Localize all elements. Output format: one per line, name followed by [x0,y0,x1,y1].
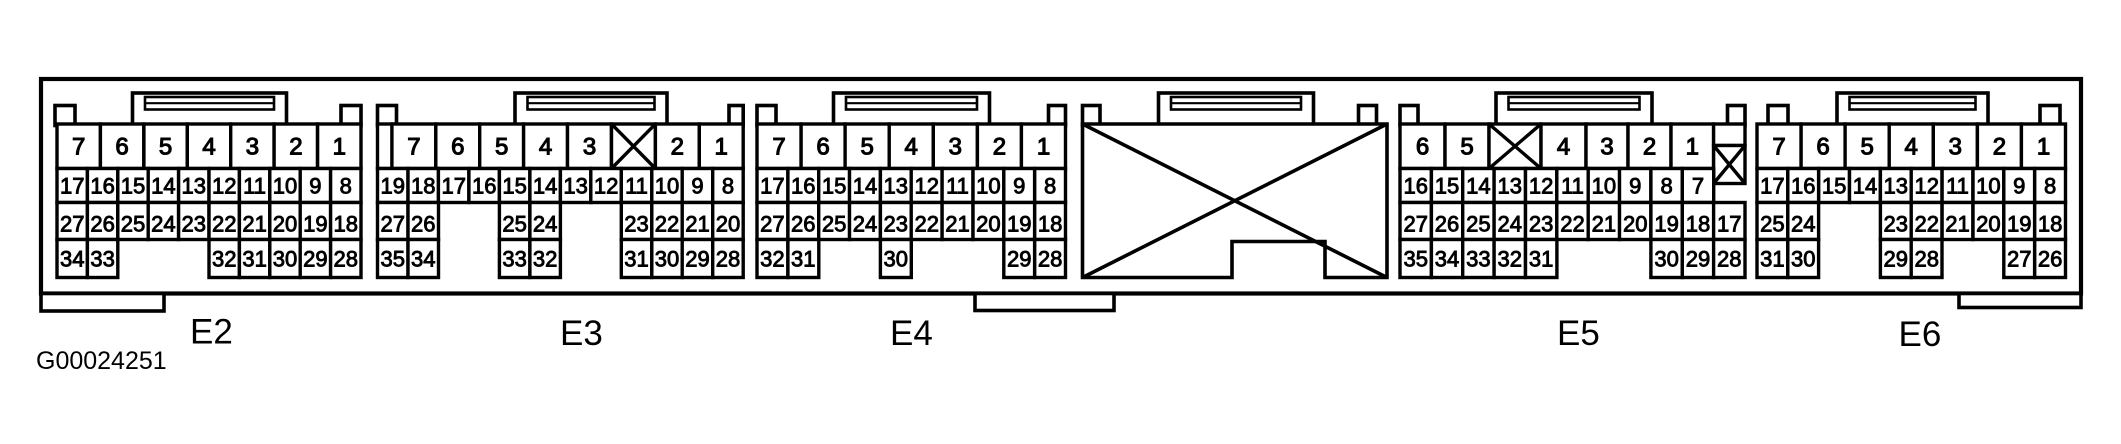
svg-text:9: 9 [2013,174,2025,199]
svg-text:27: 27 [60,211,84,236]
svg-text:21: 21 [1592,211,1616,236]
svg-text:19: 19 [1654,211,1678,236]
svg-text:28: 28 [1038,247,1062,272]
svg-text:20: 20 [273,211,297,236]
svg-text:31: 31 [791,247,815,272]
svg-text:19: 19 [303,211,327,236]
svg-text:7: 7 [72,134,85,161]
svg-text:13: 13 [884,174,908,199]
svg-text:23: 23 [1884,211,1908,236]
svg-text:22: 22 [1914,211,1938,236]
svg-text:6: 6 [1816,134,1829,161]
svg-text:34: 34 [60,247,84,272]
svg-text:28: 28 [1717,247,1741,272]
svg-text:22: 22 [655,211,679,236]
svg-text:24: 24 [1498,211,1522,236]
svg-text:10: 10 [976,174,1000,199]
svg-text:21: 21 [685,211,709,236]
svg-text:9: 9 [309,174,321,199]
svg-text:34: 34 [411,247,435,272]
svg-text:32: 32 [760,247,784,272]
svg-text:5: 5 [495,134,508,161]
svg-text:24: 24 [151,211,175,236]
svg-text:32: 32 [212,247,236,272]
svg-text:13: 13 [563,174,587,199]
svg-text:25: 25 [502,211,526,236]
svg-text:10: 10 [1592,174,1616,199]
svg-text:22: 22 [914,211,938,236]
svg-text:11: 11 [1561,174,1584,199]
svg-text:4: 4 [202,134,215,161]
svg-text:17: 17 [1717,211,1741,236]
svg-text:30: 30 [273,247,297,272]
svg-text:17: 17 [441,174,465,199]
svg-text:12: 12 [1914,174,1938,199]
svg-text:21: 21 [945,211,969,236]
svg-text:3: 3 [1600,134,1613,161]
svg-text:18: 18 [334,211,358,236]
svg-text:29: 29 [1686,247,1710,272]
svg-text:E6: E6 [1899,315,1942,354]
svg-text:31: 31 [242,247,266,272]
svg-text:15: 15 [121,174,145,199]
svg-text:1: 1 [715,134,728,161]
svg-text:33: 33 [1466,247,1490,272]
svg-text:13: 13 [1498,174,1522,199]
svg-text:26: 26 [411,211,435,236]
svg-text:E5: E5 [1557,314,1600,353]
svg-text:26: 26 [2038,247,2062,272]
svg-text:G00024251: G00024251 [36,347,167,375]
svg-text:21: 21 [1945,211,1969,236]
svg-text:4: 4 [1905,134,1918,161]
svg-text:29: 29 [1884,247,1908,272]
svg-text:11: 11 [243,174,266,199]
svg-text:27: 27 [1403,211,1427,236]
svg-text:15: 15 [1435,174,1459,199]
svg-text:34: 34 [1435,247,1459,272]
svg-text:12: 12 [212,174,236,199]
svg-text:27: 27 [2007,247,2031,272]
svg-text:29: 29 [1007,247,1031,272]
svg-text:9: 9 [1629,174,1641,199]
svg-text:E4: E4 [890,314,933,353]
svg-text:19: 19 [380,174,404,199]
svg-text:32: 32 [533,247,557,272]
svg-text:27: 27 [380,211,404,236]
svg-text:28: 28 [1914,247,1938,272]
svg-text:2: 2 [671,134,684,161]
svg-text:12: 12 [594,174,618,199]
svg-text:18: 18 [1686,211,1710,236]
svg-text:14: 14 [1466,174,1490,199]
svg-text:25: 25 [1760,211,1784,236]
svg-text:29: 29 [303,247,327,272]
svg-text:16: 16 [791,174,815,199]
svg-text:14: 14 [853,174,877,199]
svg-text:13: 13 [182,174,206,199]
svg-text:23: 23 [1529,211,1553,236]
svg-text:20: 20 [976,211,1000,236]
svg-text:7: 7 [1692,174,1704,199]
svg-text:4: 4 [1557,134,1570,161]
svg-text:6: 6 [451,134,464,161]
svg-text:7: 7 [1772,134,1785,161]
svg-text:16: 16 [1403,174,1427,199]
svg-text:14: 14 [1853,174,1877,199]
svg-text:3: 3 [246,134,259,161]
svg-text:25: 25 [1466,211,1490,236]
svg-text:4: 4 [539,134,552,161]
svg-text:11: 11 [946,174,969,199]
svg-text:2: 2 [1643,134,1656,161]
svg-text:5: 5 [159,134,172,161]
svg-text:33: 33 [502,247,526,272]
svg-text:15: 15 [502,174,526,199]
svg-text:19: 19 [2007,211,2031,236]
svg-text:18: 18 [1038,211,1062,236]
svg-text:35: 35 [380,247,404,272]
svg-text:26: 26 [1435,211,1459,236]
svg-text:8: 8 [2044,174,2056,199]
svg-text:11: 11 [625,174,648,199]
svg-text:28: 28 [716,247,740,272]
svg-text:14: 14 [151,174,175,199]
svg-text:22: 22 [1560,211,1584,236]
svg-text:19: 19 [1007,211,1031,236]
svg-text:18: 18 [411,174,435,199]
svg-text:7: 7 [407,134,420,161]
svg-text:9: 9 [1013,174,1025,199]
svg-text:2: 2 [993,134,1006,161]
svg-text:6: 6 [816,134,829,161]
svg-text:26: 26 [90,211,114,236]
svg-text:2: 2 [289,134,302,161]
svg-text:20: 20 [1976,211,2000,236]
svg-text:31: 31 [1529,247,1553,272]
svg-text:5: 5 [1861,134,1874,161]
svg-text:20: 20 [1623,211,1647,236]
svg-text:16: 16 [90,174,114,199]
svg-text:5: 5 [1460,134,1473,161]
svg-text:24: 24 [533,211,557,236]
svg-text:3: 3 [583,134,596,161]
svg-text:1: 1 [333,134,346,161]
svg-text:30: 30 [884,247,908,272]
svg-text:1: 1 [2037,134,2050,161]
svg-text:22: 22 [212,211,236,236]
svg-text:6: 6 [1416,134,1429,161]
svg-text:25: 25 [822,211,846,236]
svg-text:21: 21 [242,211,266,236]
svg-text:30: 30 [1654,247,1678,272]
svg-text:7: 7 [772,134,785,161]
svg-text:30: 30 [1791,247,1815,272]
svg-text:13: 13 [1884,174,1908,199]
svg-text:6: 6 [115,134,128,161]
svg-text:23: 23 [624,211,648,236]
svg-text:33: 33 [90,247,114,272]
svg-text:9: 9 [691,174,703,199]
svg-text:12: 12 [1529,174,1553,199]
svg-text:2: 2 [1993,134,2006,161]
svg-text:17: 17 [1760,174,1784,199]
svg-text:16: 16 [1791,174,1815,199]
svg-text:1: 1 [1037,134,1050,161]
svg-text:23: 23 [884,211,908,236]
svg-text:31: 31 [1760,247,1784,272]
svg-text:20: 20 [716,211,740,236]
svg-text:E3: E3 [560,314,603,353]
svg-text:24: 24 [1791,211,1815,236]
svg-text:E2: E2 [190,313,233,352]
svg-text:8: 8 [722,174,734,199]
svg-text:31: 31 [624,247,648,272]
svg-text:18: 18 [2038,211,2062,236]
svg-text:3: 3 [949,134,962,161]
svg-text:23: 23 [182,211,206,236]
svg-text:10: 10 [273,174,297,199]
svg-text:3: 3 [1949,134,1962,161]
svg-text:8: 8 [1044,174,1056,199]
svg-text:27: 27 [760,211,784,236]
svg-text:30: 30 [655,247,679,272]
svg-text:11: 11 [1946,174,1969,199]
svg-text:32: 32 [1498,247,1522,272]
svg-text:17: 17 [60,174,84,199]
svg-text:4: 4 [905,134,918,161]
svg-text:28: 28 [334,247,358,272]
svg-text:10: 10 [655,174,679,199]
svg-text:25: 25 [121,211,145,236]
svg-text:29: 29 [685,247,709,272]
svg-text:12: 12 [914,174,938,199]
svg-text:15: 15 [822,174,846,199]
svg-text:14: 14 [533,174,557,199]
svg-text:35: 35 [1403,247,1427,272]
svg-text:5: 5 [861,134,874,161]
svg-text:8: 8 [340,174,352,199]
svg-text:10: 10 [1976,174,2000,199]
svg-text:26: 26 [791,211,815,236]
svg-text:15: 15 [1822,174,1846,199]
svg-text:1: 1 [1686,134,1699,161]
svg-text:8: 8 [1660,174,1672,199]
svg-text:24: 24 [853,211,877,236]
svg-text:17: 17 [760,174,784,199]
svg-text:16: 16 [472,174,496,199]
